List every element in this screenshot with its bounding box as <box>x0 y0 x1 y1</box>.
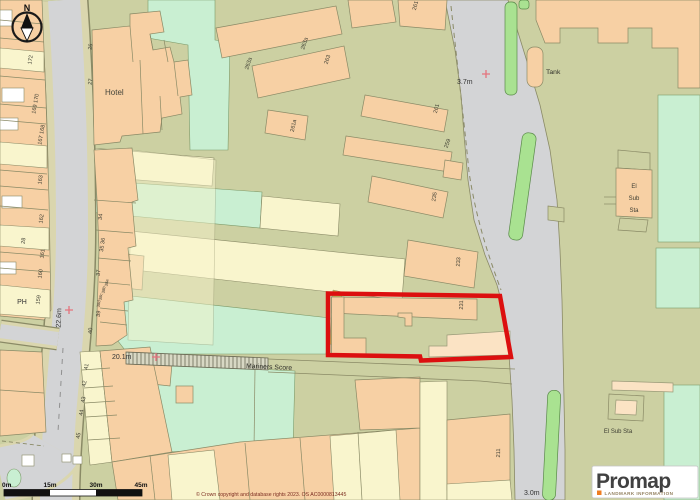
house-number: 233 <box>456 257 463 267</box>
house-number: 28 <box>21 237 28 244</box>
garden <box>155 364 295 452</box>
spot-height: 22.6m <box>56 308 64 328</box>
promap-map-view: 174 172 169 170 167 168 163 162 161 160 … <box>0 0 700 500</box>
building <box>176 386 193 403</box>
building <box>2 88 24 102</box>
house-number: 39 <box>96 310 103 317</box>
el-sub-sta-label: Sub <box>629 196 640 202</box>
house-number: 41 <box>84 363 91 370</box>
building <box>420 381 447 500</box>
el-sub-sta-label: Sta <box>629 208 639 214</box>
verge-green-strip <box>505 2 517 95</box>
building <box>330 430 400 500</box>
building <box>0 118 18 130</box>
spot-height: 3.7m <box>457 79 473 86</box>
map-canvas[interactable]: 174 172 169 170 167 168 163 162 161 160 … <box>0 0 700 500</box>
road-surface <box>0 331 58 339</box>
building <box>0 48 44 72</box>
brand-tagline: LANDMARK INFORMATION <box>605 491 674 496</box>
building <box>0 225 49 250</box>
house-number: 38a <box>104 278 110 286</box>
traffic-island <box>62 454 71 462</box>
house-number: 45 <box>76 432 83 439</box>
house-number: 44 <box>79 409 86 416</box>
house-number: 211 <box>496 448 502 457</box>
building <box>615 400 637 415</box>
building <box>443 160 463 180</box>
structure <box>22 455 34 466</box>
scale-tick: 45m <box>134 482 147 489</box>
el-sub-sta-label: El <box>631 184 636 190</box>
structure <box>618 150 650 170</box>
wall <box>612 381 673 392</box>
building <box>0 10 12 26</box>
field <box>656 248 700 308</box>
copyright-text: © Crown copyright and database rights 20… <box>196 491 346 498</box>
hotel-label: Hotel <box>105 88 124 97</box>
structure <box>618 218 648 232</box>
scale-bar-segment <box>4 490 50 497</box>
garden <box>128 150 216 345</box>
verge-green-strip <box>519 0 529 9</box>
house-number: 38b <box>101 285 107 293</box>
el-sub-sta-label: El Sub Sta <box>604 429 633 435</box>
landmark-square-icon <box>597 491 602 496</box>
house-number: 42 <box>82 380 89 387</box>
building <box>355 377 420 430</box>
scale-bar-segment <box>96 490 142 497</box>
spot-height: 20.1m <box>112 354 132 361</box>
promap-logo: Promap LANDMARK INFORMATION <box>592 466 698 498</box>
brand-name: Promap <box>596 470 671 493</box>
tank-structure <box>527 47 543 87</box>
house-number: 26 <box>88 43 95 50</box>
house-number: 43 <box>81 396 88 403</box>
scale-tick: 15m <box>43 482 56 489</box>
scale-tick: 30m <box>89 482 102 489</box>
building <box>398 0 447 30</box>
traffic-island <box>73 456 82 464</box>
house-number: 40 <box>88 327 95 334</box>
house-number: 38d <box>96 299 102 307</box>
ph-label: PH <box>17 299 27 306</box>
field <box>658 95 700 242</box>
house-number: 38c <box>98 293 104 300</box>
north-label: N <box>24 3 31 13</box>
spot-height: 3.0m <box>524 490 540 497</box>
house-number: 37 <box>96 269 103 276</box>
structure <box>548 206 564 222</box>
house-number: 34 <box>98 213 105 220</box>
house-number: 231 <box>459 300 465 310</box>
scale-tick: 0m <box>2 482 12 489</box>
tank-label: Tank <box>546 69 561 76</box>
building <box>0 142 47 168</box>
house-number: 27 <box>88 78 95 85</box>
